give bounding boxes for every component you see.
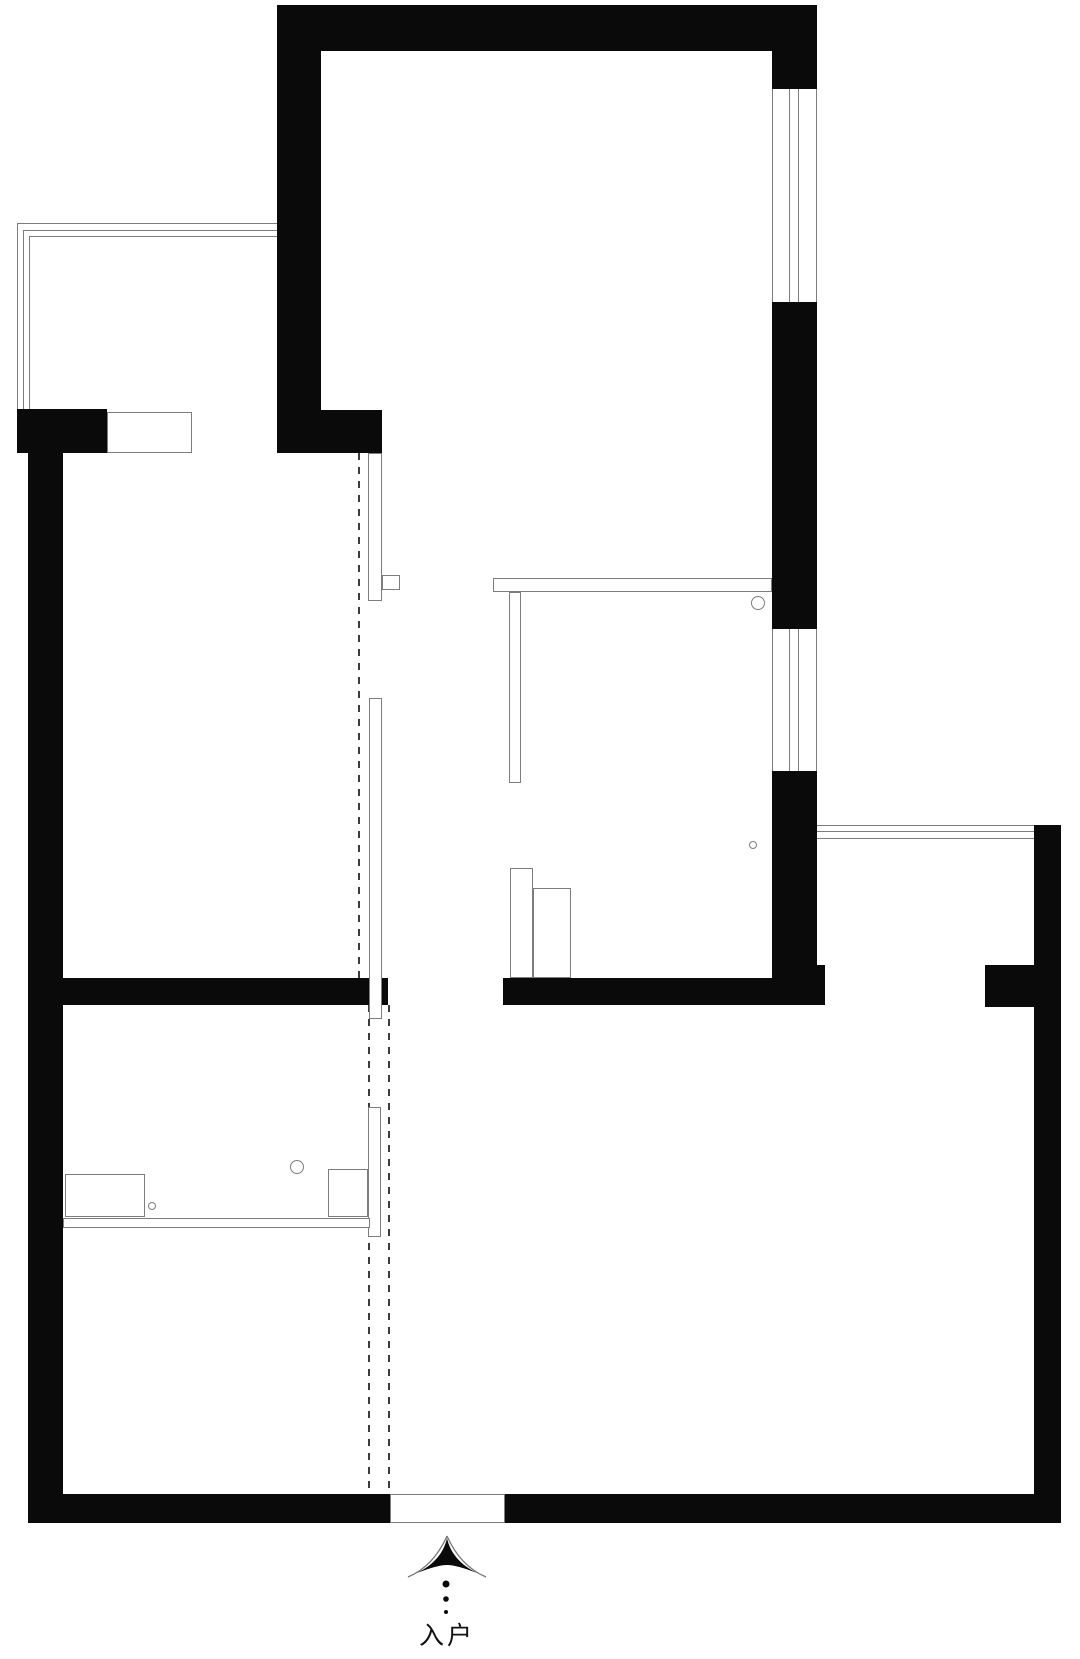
mid-wall-left xyxy=(63,978,388,1005)
bottom-wall xyxy=(28,1494,1061,1523)
right-window1-line-1 xyxy=(772,89,773,302)
balcony-window-line-h3 xyxy=(29,236,277,237)
balcony-window-line-h2 xyxy=(23,230,277,231)
right-window1-line-4 xyxy=(816,89,817,302)
door-track-dash-lower-right xyxy=(388,1005,390,1494)
fixture-circle-3 xyxy=(290,1160,304,1174)
fixture-circle-2 xyxy=(749,841,757,849)
entrance-arrow-icon xyxy=(397,1532,497,1617)
right-window2-line-4 xyxy=(816,629,817,771)
floor-plan-canvas: 入户 xyxy=(0,0,1080,1659)
right-upper-wall-b xyxy=(772,302,817,629)
partition-header-wall xyxy=(321,410,382,453)
counter-bar xyxy=(493,578,772,592)
balcony-opening xyxy=(107,412,192,453)
right-upper-wall-c xyxy=(772,771,817,965)
balcony-window-line-v2 xyxy=(23,230,24,409)
bath-cabinet xyxy=(328,1169,368,1217)
bath-counter xyxy=(65,1174,145,1217)
left-outer-wall xyxy=(28,412,63,1523)
right-outer-wall xyxy=(1034,825,1061,1523)
upper-left-wall xyxy=(277,5,321,453)
right-window2-line-1 xyxy=(772,629,773,771)
top-wall xyxy=(277,5,817,51)
right-mid-foot-wall xyxy=(772,965,825,1005)
cabinet-b xyxy=(533,888,571,978)
cabinet-a xyxy=(510,868,533,978)
right-window2-line-3 xyxy=(798,629,799,771)
entrance-label: 入户 xyxy=(397,1616,497,1652)
south-window-line-2 xyxy=(817,831,1034,832)
arrow-dot-2 xyxy=(443,1596,449,1602)
fixture-circle-1 xyxy=(751,596,765,610)
sliding-panel-upper xyxy=(368,453,382,601)
door-track-dash-lower-left xyxy=(368,1005,370,1494)
sliding-panel-hook xyxy=(382,575,400,590)
arrow-head xyxy=(417,1538,477,1573)
fixture-circle-4 xyxy=(148,1202,156,1210)
arrow-dot-1 xyxy=(443,1581,450,1588)
right-window2-line-2 xyxy=(789,629,790,771)
sliding-panel-middle xyxy=(369,698,382,1019)
mid-wall-right xyxy=(503,978,772,1005)
right-stub-wall xyxy=(985,965,1034,1007)
right-upper-wall-a xyxy=(772,51,817,89)
counter-leg xyxy=(509,592,521,783)
balcony-window-line-h1 xyxy=(17,223,277,224)
entrance-opening xyxy=(390,1494,505,1523)
south-window-line-1 xyxy=(817,825,1034,826)
arrow-dot-3 xyxy=(444,1610,448,1614)
balcony-window-line-v1 xyxy=(17,223,18,409)
door-track-dash-upper xyxy=(358,453,360,978)
right-window1-line-3 xyxy=(798,89,799,302)
balcony-window-line-v3 xyxy=(29,236,30,409)
south-window-line-3 xyxy=(817,838,1034,839)
bath-bench xyxy=(63,1218,370,1228)
right-window1-line-2 xyxy=(789,89,790,302)
